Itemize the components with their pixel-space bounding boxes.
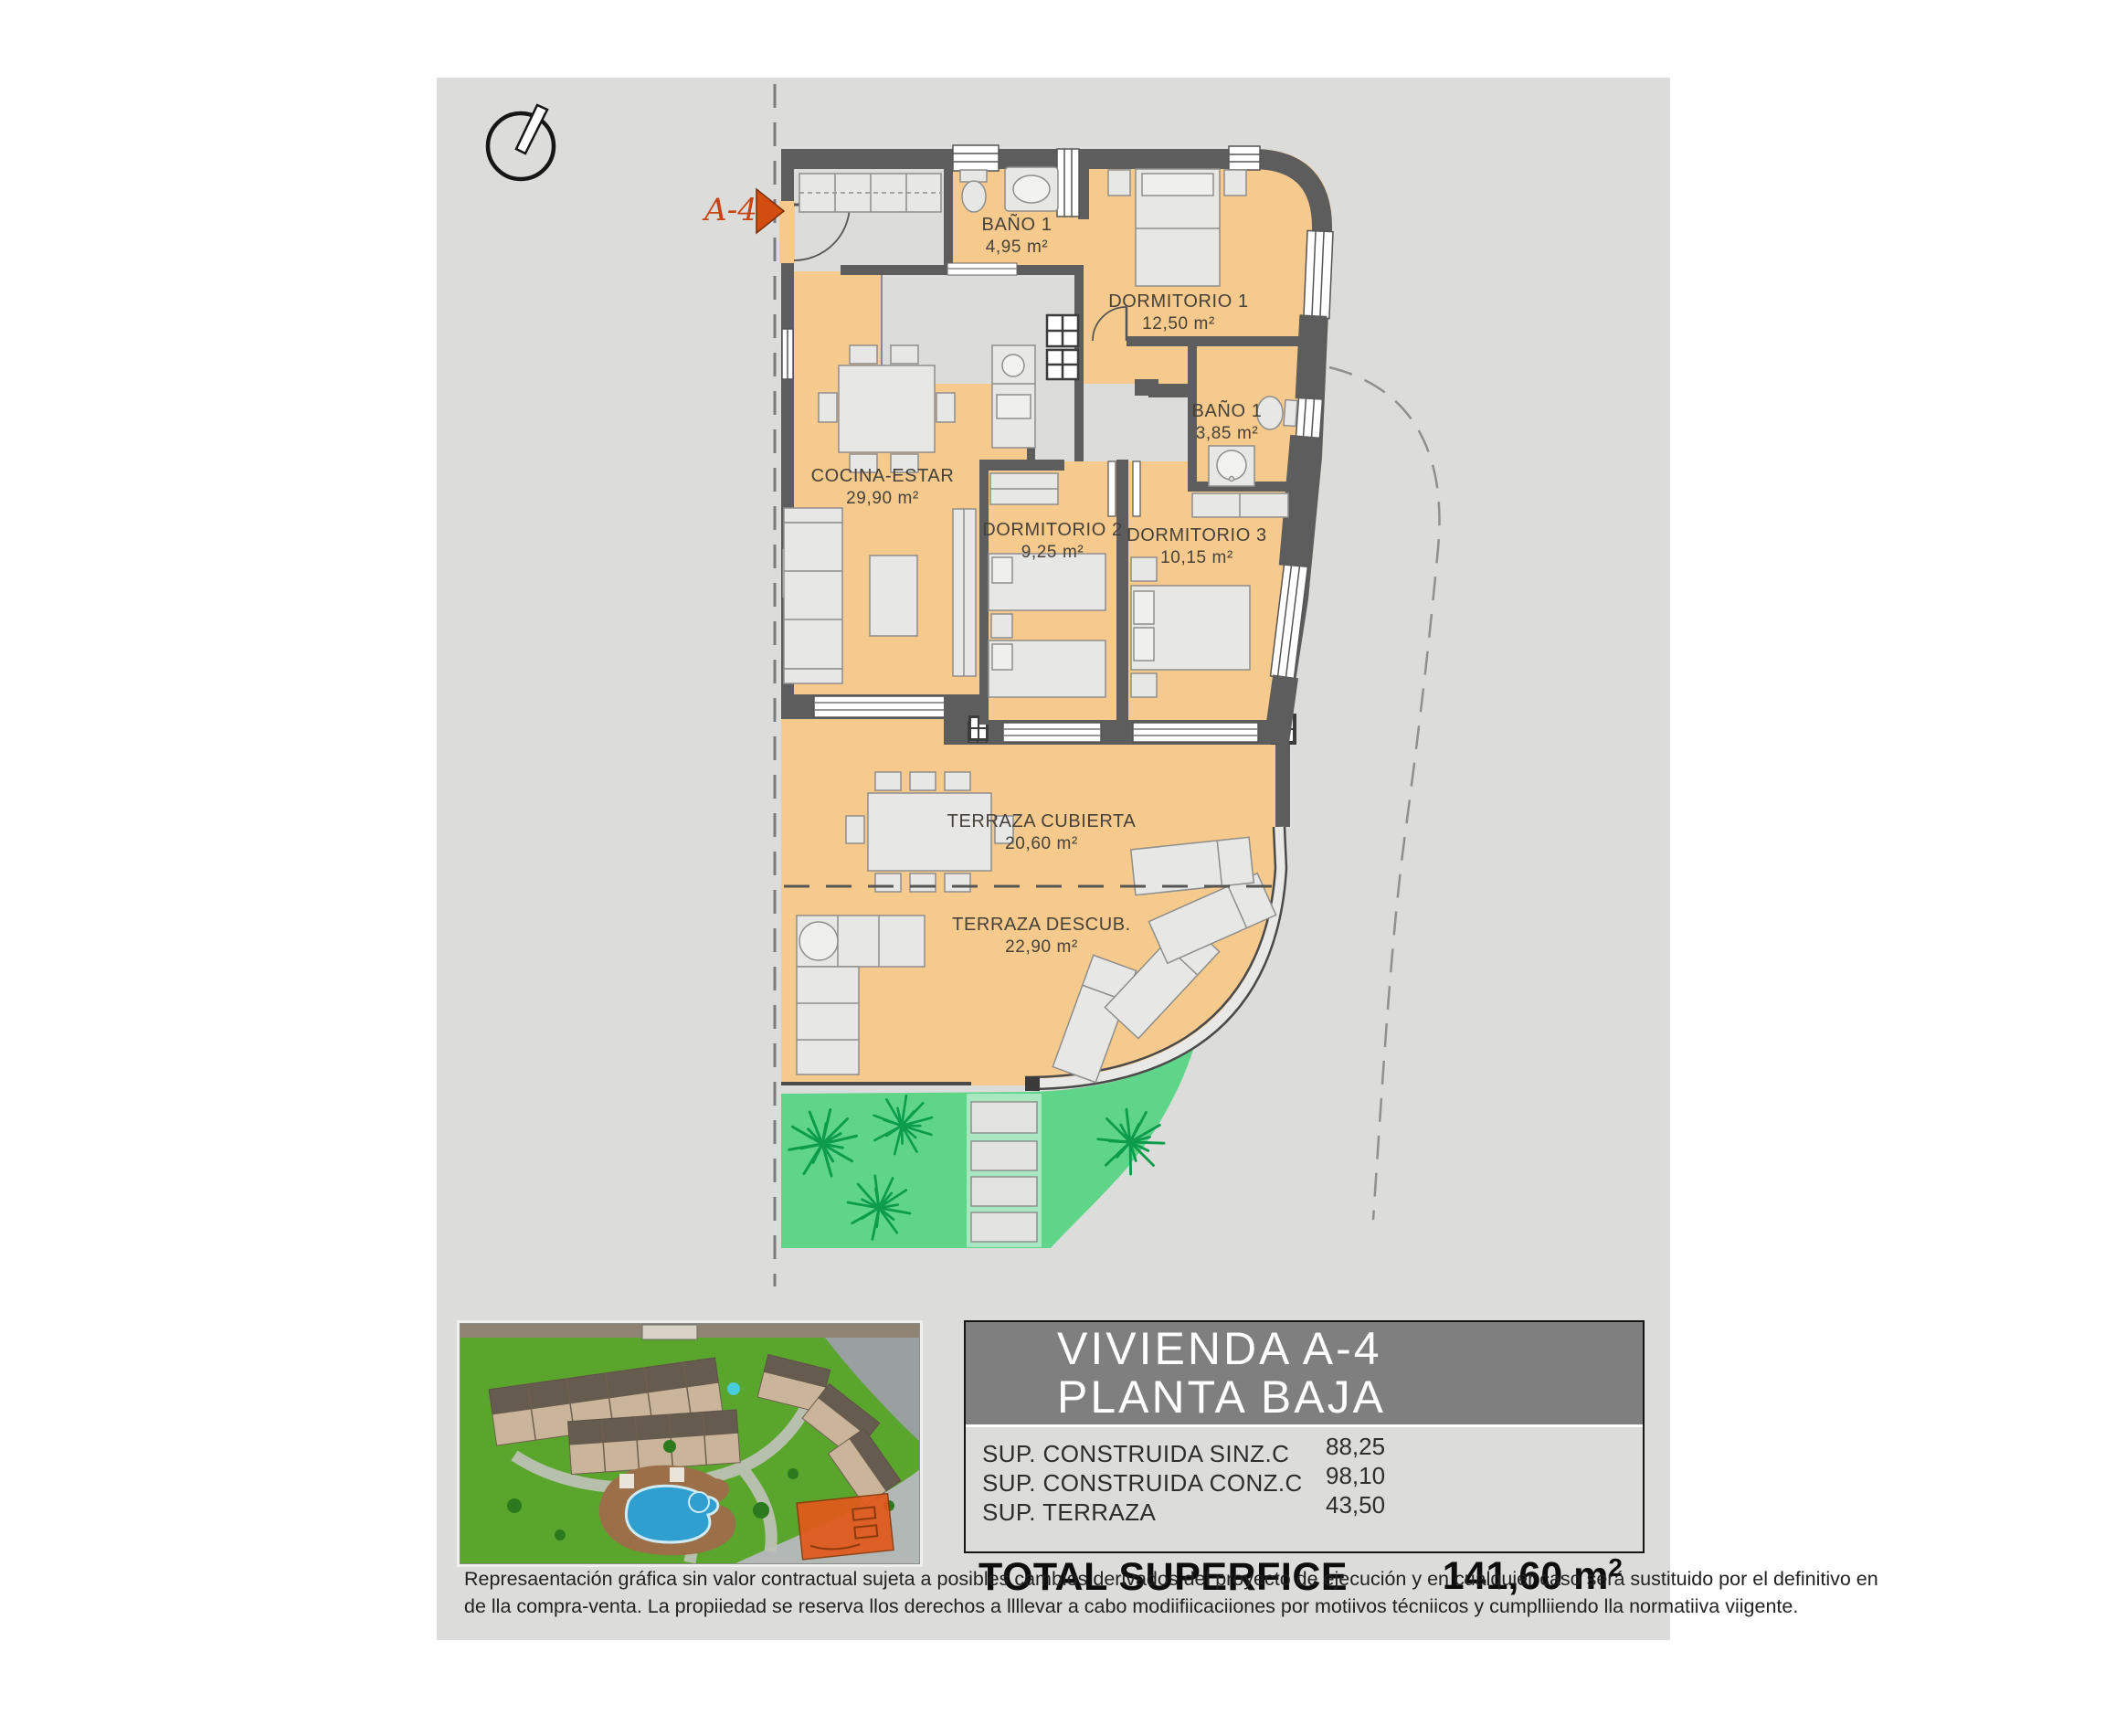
site-plan-image	[457, 1320, 923, 1567]
unit-marker-label: A-4	[702, 192, 757, 228]
room-area: 9,25 m²	[1021, 543, 1084, 562]
surface-row-value: 98,10	[1326, 1462, 1385, 1490]
disclaimer-line-1: Represaentación gráfica sin valor contra…	[464, 1565, 1878, 1593]
room-area: 29,90 m²	[846, 489, 919, 508]
surface-row-label: SUP. TERRAZA	[982, 1498, 1156, 1527]
surface-row-value: 88,25	[1326, 1433, 1385, 1461]
floor-title: PLANTA BAJA	[1057, 1373, 1643, 1422]
room-label: BAÑO 1	[1192, 399, 1263, 421]
room-label: TERRAZA CUBIERTA	[947, 811, 1137, 831]
surface-row-label: SUP. CONSTRUIDA SINZ.C	[982, 1440, 1289, 1468]
room-area: 22,90 m²	[1005, 937, 1078, 957]
room-area: 4,95 m²	[986, 238, 1049, 257]
surface-row-value: 43,50	[1326, 1491, 1385, 1519]
room-label: TERRAZA DESCUB.	[952, 915, 1131, 935]
drawing-canvas: A-4 BAÑO 1 4,95 m² DORMITORIO 1 12,50 m²…	[437, 78, 1670, 1640]
unit-marker: A-4	[702, 189, 784, 233]
room-label: DORMITORIO 3	[1127, 525, 1267, 545]
floor-plan: A-4 BAÑO 1 4,95 m² DORMITORIO 1 12,50 m²…	[437, 78, 1670, 1297]
room-area: 3,85 m²	[1196, 424, 1259, 443]
disclaimer-line-2: de lla compra-venta. La propiiedad se re…	[464, 1593, 1878, 1620]
room-label: COCINA-ESTAR	[811, 466, 955, 486]
room-label: DORMITORIO 2	[982, 520, 1123, 540]
room-area: 10,15 m²	[1160, 548, 1233, 567]
parcel-dashed-curve	[1329, 367, 1439, 1220]
highlighted-unit	[797, 1494, 894, 1560]
title-block-header: VIVIENDA A-4 PLANTA BAJA	[966, 1322, 1643, 1427]
floor-plan-sheet: A-4 BAÑO 1 4,95 m² DORMITORIO 1 12,50 m²…	[0, 0, 2105, 1736]
room-label: DORMITORIO 1	[1108, 291, 1249, 312]
unit-title: VIVIENDA A-4	[1057, 1325, 1643, 1373]
north-compass-icon	[488, 105, 554, 179]
room-area: 20,60 m²	[1005, 834, 1078, 853]
surface-row-label: SUP. CONSTRUIDA CONZ.C	[982, 1469, 1303, 1498]
title-block-surfaces: SUP. CONSTRUIDA SINZ.C SUP. CONSTRUIDA C…	[966, 1427, 1643, 1553]
room-label: BAÑO 1	[982, 213, 1052, 235]
duct-shafts	[1047, 315, 1078, 379]
title-block: VIVIENDA A-4 PLANTA BAJA SUP. CONSTRUIDA…	[964, 1320, 1645, 1553]
pool	[599, 1466, 736, 1556]
disclaimer: Represaentación gráfica sin valor contra…	[464, 1565, 1878, 1620]
room-area: 12,50 m²	[1142, 314, 1215, 333]
